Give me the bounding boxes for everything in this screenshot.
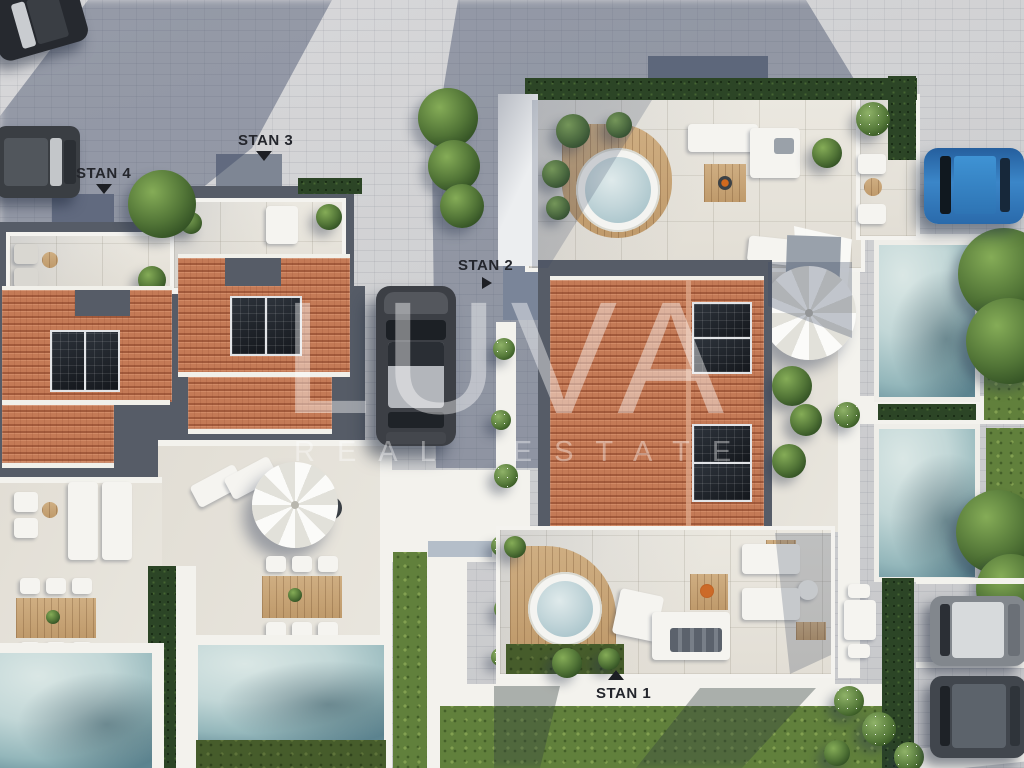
pool-deck	[0, 643, 164, 653]
roof-notch	[225, 258, 281, 286]
flowering-shrub	[862, 712, 896, 746]
flowering-shrub	[894, 742, 924, 768]
dining-chair	[20, 578, 40, 594]
garden-grass	[393, 552, 427, 768]
tree	[440, 184, 484, 228]
tree	[128, 170, 196, 238]
dining-chair	[292, 556, 312, 572]
armchair	[14, 518, 38, 538]
swimming-pool	[874, 424, 980, 582]
patio-umbrella	[252, 462, 338, 548]
hedge-between-pools	[878, 404, 976, 420]
pool-deck	[152, 653, 164, 768]
parking-divider	[916, 578, 1024, 584]
sofa-cushions	[670, 628, 722, 652]
terrace-armchair	[14, 244, 38, 264]
terrace-lounge-chair	[266, 206, 298, 244]
fruit-bowl	[700, 584, 714, 598]
stan-2-arrow-right-icon	[482, 277, 492, 289]
stan-1-arrow-up-icon	[608, 670, 624, 680]
car-dark-bottom	[930, 676, 1024, 758]
car-blue	[924, 148, 1024, 224]
flowering-shrub	[834, 402, 860, 428]
bistro-table	[844, 600, 876, 640]
site-plan-render: LUVA REAL ESTATE STAN 4 STAN 3 STAN 2 ST…	[0, 0, 1024, 768]
shrub	[552, 648, 582, 678]
balcony-tree	[772, 444, 806, 478]
bistro-chair	[848, 584, 870, 598]
terrace-step	[496, 678, 835, 686]
side-table	[42, 502, 58, 518]
dining-chair	[72, 578, 92, 594]
label-stan-2: STAN 2	[458, 258, 513, 273]
stan-3-arrow-down-icon	[256, 151, 272, 161]
roof-notch	[75, 290, 130, 316]
dining-table	[262, 576, 342, 618]
flowering-shrub	[856, 102, 890, 136]
swimming-pool	[198, 645, 384, 741]
shrub	[598, 648, 620, 670]
watermark-brand: LUVA	[282, 278, 736, 438]
tree	[418, 88, 478, 148]
fire-bowl	[718, 176, 732, 190]
sofa-cushion	[774, 138, 794, 154]
bistro-table	[864, 178, 882, 196]
bistro-chair	[848, 644, 870, 658]
terrace-chair	[858, 204, 886, 224]
swimming-pool	[0, 653, 152, 768]
watermark-tagline: REAL ESTATE	[294, 438, 753, 467]
label-stan-1: STAN 1	[596, 686, 651, 701]
outdoor-sofa	[688, 124, 758, 152]
flowering-shrub	[834, 686, 864, 716]
hot-tub	[528, 572, 602, 646]
label-stan-3: STAN 3	[238, 133, 293, 148]
sun-lounger	[102, 482, 132, 560]
car-silver-bottom	[930, 596, 1024, 666]
shrub	[504, 536, 526, 558]
planter-shrub	[812, 138, 842, 168]
balcony-tree	[790, 404, 822, 436]
terrace-armchair	[14, 268, 38, 288]
solar-panels	[50, 330, 120, 392]
shrub	[316, 204, 342, 230]
terrace-chair	[858, 154, 886, 174]
dining-chair	[46, 578, 66, 594]
car-dark-left	[0, 126, 80, 198]
dining-chair	[318, 556, 338, 572]
dining-chair	[266, 556, 286, 572]
parapet-hedge	[888, 76, 916, 160]
parapet-hedge	[525, 78, 917, 100]
balcony-tree	[772, 366, 812, 406]
table-centerpiece	[46, 610, 60, 624]
armchair	[14, 492, 38, 512]
pool-deck	[188, 635, 388, 645]
terrace-round-table	[42, 252, 58, 268]
stan4-roof-lower	[2, 405, 114, 463]
parapet-hedge	[298, 178, 362, 194]
garden-grass	[196, 740, 386, 768]
stan-4-arrow-down-icon	[96, 184, 112, 194]
roof-gutter	[2, 463, 114, 468]
shrub	[824, 740, 850, 766]
table-centerpiece	[288, 588, 302, 602]
label-stan-4: STAN 4	[76, 166, 131, 181]
entry-step	[428, 541, 492, 557]
sun-lounger	[68, 482, 98, 560]
